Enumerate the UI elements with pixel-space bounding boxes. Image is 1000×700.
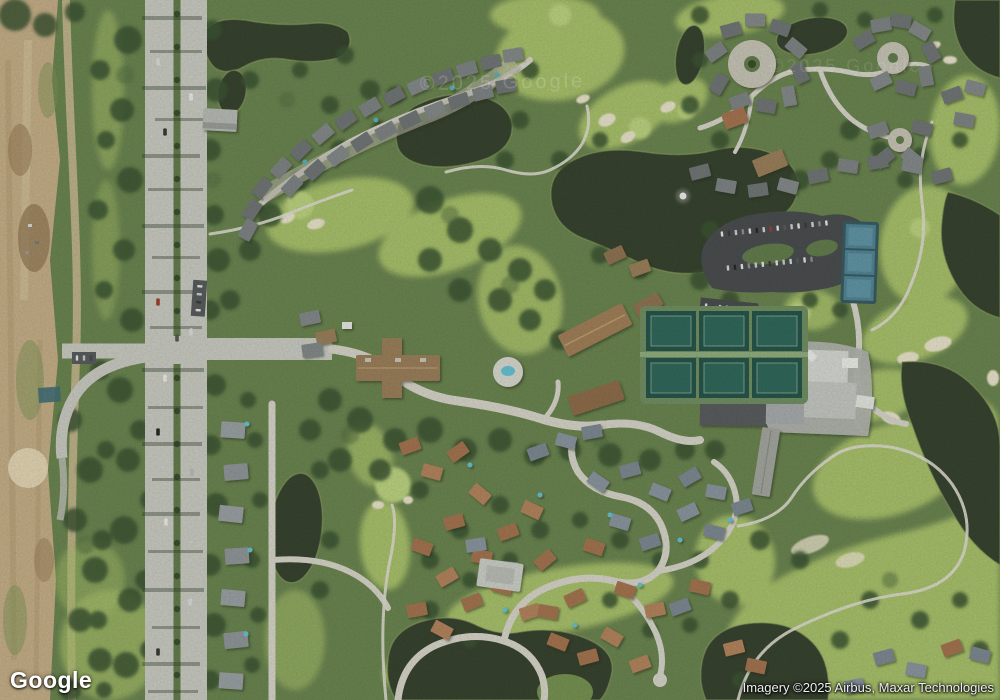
imagery-watermark: ©2025 Google [770,56,922,76]
google-logo[interactable]: Google [10,667,92,694]
map-viewport[interactable]: ©2025 Google ©2025 Google Google Imagery… [0,0,1000,700]
imagery-attribution: Imagery ©2025 Airbus, Maxar Technologies [743,680,994,695]
imagery-watermark: ©2025 Google [420,70,586,95]
color-cast-overlay [0,0,1000,700]
satellite-imagery[interactable]: ©2025 Google ©2025 Google [0,0,1000,700]
